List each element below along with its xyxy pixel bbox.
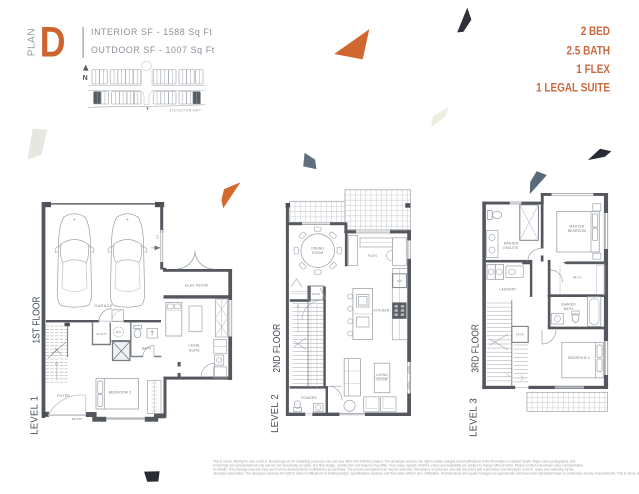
svg-text:LAUNDRY: LAUNDRY [499, 288, 517, 292]
svg-text:MASTER: MASTER [504, 242, 519, 246]
svg-text:FLEX: FLEX [368, 254, 378, 258]
svg-text:BEDROOM 3: BEDROOM 3 [568, 356, 590, 360]
svg-text:BATH: BATH [142, 347, 152, 351]
svg-text:INTERIOR SF - 1588 Sq Ft: INTERIOR SF - 1588 Sq Ft [91, 27, 212, 37]
svg-text:STEVESTON HWY: STEVESTON HWY [169, 109, 202, 113]
svg-text:LEVEL 2: LEVEL 2 [270, 394, 281, 433]
svg-text:W/D: W/D [116, 331, 121, 334]
svg-text:BEDROOM: BEDROOM [568, 229, 586, 233]
svg-text:3RD FLOOR: 3RD FLOOR [470, 324, 481, 373]
svg-text:developer corporation. The dev: developer corporation. The developer res… [213, 472, 639, 476]
svg-text:ENSUITE: ENSUITE [503, 246, 518, 250]
svg-text:1 FLEX: 1 FLEX [576, 63, 610, 76]
svg-text:KITCHEN: KITCHEN [374, 309, 390, 313]
svg-text:MASTER: MASTER [570, 225, 585, 229]
svg-text:DW: DW [397, 280, 402, 283]
svg-text:W.I.C: W.I.C [573, 276, 582, 280]
svg-text:E3: E3 [155, 235, 159, 239]
svg-text:LEVEL 1: LEVEL 1 [29, 396, 40, 435]
svg-text:ELEC ROOM: ELEC ROOM [185, 284, 208, 288]
svg-text:SHARED: SHARED [561, 303, 576, 307]
svg-text:LIVING: LIVING [376, 373, 388, 377]
svg-text:POWDER: POWDER [301, 396, 317, 400]
svg-text:GARAGE: GARAGE [94, 304, 112, 308]
svg-text:ROOM: ROOM [376, 377, 387, 381]
svg-text:LEGAL: LEGAL [189, 344, 201, 348]
svg-text:DINING: DINING [311, 247, 324, 251]
svg-text:STOR: STOR [516, 333, 524, 337]
svg-text:1ST FLOOR: 1ST FLOOR [31, 296, 42, 344]
svg-text:SUITE: SUITE [189, 349, 201, 353]
svg-text:2ND FLOOR: 2ND FLOOR [271, 323, 282, 372]
svg-text:D: D [40, 19, 66, 67]
svg-text:UTILITY: UTILITY [96, 332, 107, 336]
svg-text:PLAN: PLAN [27, 28, 38, 57]
svg-text:LEVEL 3: LEVEL 3 [468, 398, 479, 437]
svg-text:ROOM: ROOM [312, 251, 323, 255]
svg-text:STOR: STOR [312, 292, 320, 296]
svg-text:2 BED: 2 BED [581, 25, 610, 38]
svg-text:BEDROOM 2: BEDROOM 2 [109, 391, 132, 395]
svg-text:ENTRY: ENTRY [72, 417, 83, 421]
svg-text:FOYER: FOYER [57, 394, 70, 398]
svg-text:1 LEGAL SUITE: 1 LEGAL SUITE [536, 82, 610, 95]
svg-text:OUTDOOR SF - 1007 Sq Ft: OUTDOOR SF - 1007 Sq Ft [91, 45, 215, 55]
svg-text:N: N [83, 75, 88, 82]
svg-text:BATH: BATH [564, 307, 574, 311]
svg-text:2.5 BATH: 2.5 BATH [567, 45, 611, 58]
